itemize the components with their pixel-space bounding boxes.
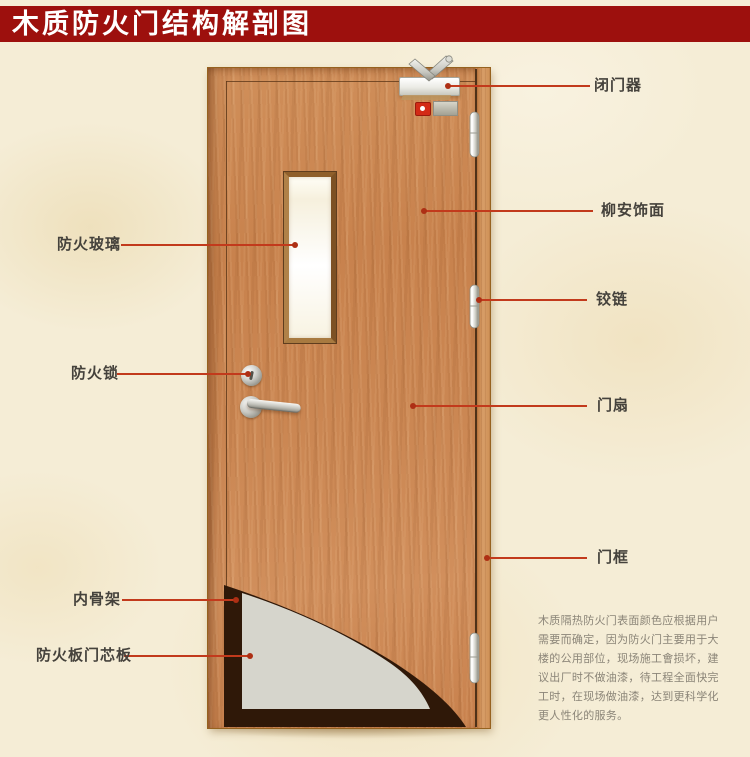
page: 木质防火门结构解剖图 [0,0,750,757]
leader-lines [117,86,593,656]
description-line: 需要而确定，因为防火门主要用于大 [538,631,728,650]
label-skeleton: 内骨架 [73,592,121,608]
description-line: 木质隔热防火门表面颜色应根据用户 [538,612,728,631]
label-door-frame: 门框 [597,550,629,566]
description-paragraph: 木质隔热防火门表面颜色应根据用户 需要而确定，因为防火门主要用于大 楼的公用部位… [538,612,728,726]
label-core-board: 防火板门芯板 [36,648,132,664]
label-fire-glass: 防火玻璃 [57,237,121,253]
hinge-middle [470,285,479,328]
label-fire-lock: 防火锁 [71,366,119,382]
description-line: 议出厂时不做油漆，待工程全面快完 [538,669,728,688]
description-line: 更人性化的服务。 [538,707,728,726]
core-panel-cutaway [242,593,430,709]
hinge-bottom [470,633,479,683]
leader-dots [233,83,490,659]
label-door-leaf: 门扇 [597,398,629,414]
hinge-top [470,112,479,157]
description-line: 楼的公用部位，现场施工會损坏，建 [538,650,728,669]
door-closer-arm [409,56,453,81]
label-veneer: 柳安饰面 [601,203,665,219]
description-line: 工时，在现场做油漆，达到更科学化 [538,688,728,707]
label-hinge: 铰链 [596,292,628,308]
label-door-closer: 闭门器 [594,78,642,94]
